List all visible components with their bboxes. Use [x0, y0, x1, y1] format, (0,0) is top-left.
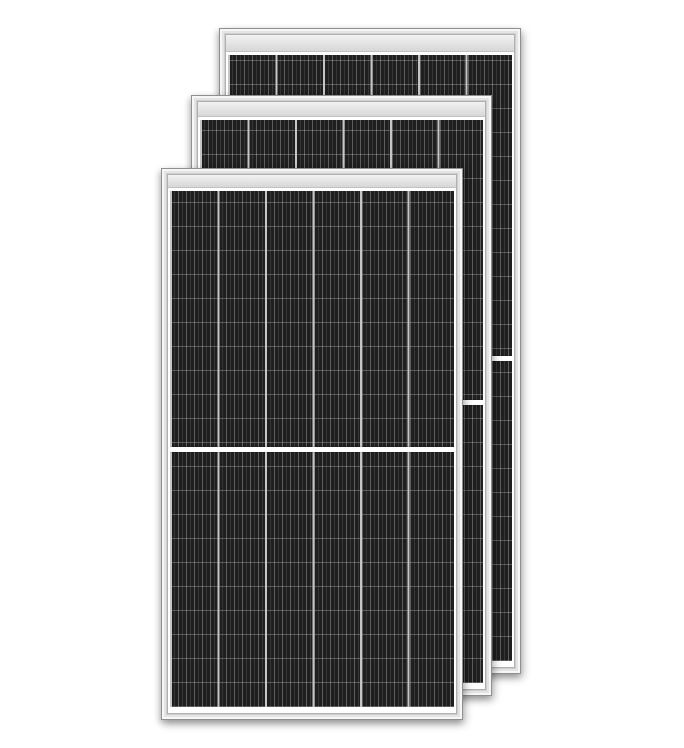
panel-top-rail — [168, 175, 456, 188]
solar-panel-front — [161, 168, 463, 720]
panel-cell-grid — [170, 191, 454, 707]
panel-backsheet — [168, 175, 456, 713]
panel-center-divider — [170, 447, 454, 452]
panel-top-rail — [198, 102, 485, 117]
panel-top-rail — [226, 35, 514, 52]
product-image-canvas — [0, 0, 684, 748]
